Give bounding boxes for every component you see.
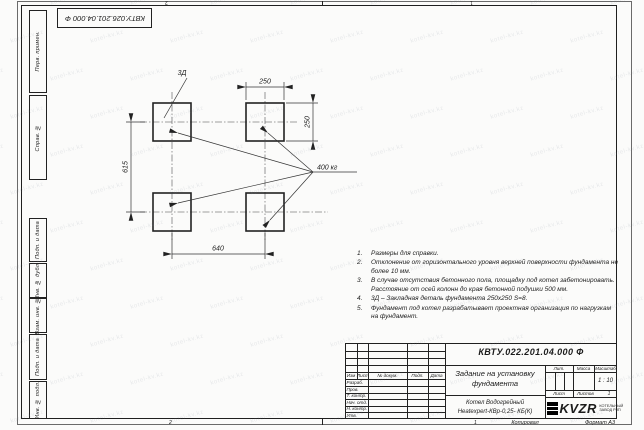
tb-line: [428, 343, 429, 419]
tb-col-izm: Изм: [345, 373, 357, 378]
dim-text-right-250: 250: [305, 116, 312, 129]
note-text: 3Д – Закладная деталь фундамента 250x250…: [371, 295, 619, 303]
margin-box-sprav-no: Справ. №: [29, 95, 48, 180]
tb-col-list: Лист: [357, 373, 368, 378]
watermark-text: kotel-kv.kz: [0, 143, 5, 158]
watermark-text: kotel-kv.kz: [0, 219, 5, 234]
margin-box-inv-dubl: Инв. № дубл.: [29, 263, 48, 298]
top-designation-text: КВТУ.026.201.04.000 Ф: [65, 14, 145, 23]
tb-line: [368, 343, 369, 419]
watermark-text: kotel-kv.kz: [0, 371, 5, 386]
tb-line: [564, 372, 565, 390]
tb-lit-label: Лит.: [545, 366, 573, 371]
margin-box-vzam-inv: Взам. инв. №: [29, 298, 48, 333]
tb-line: [345, 351, 445, 352]
tb-row-nachotd: Нач. отд.: [347, 400, 368, 405]
embed-label-text: 3Д: [178, 70, 187, 77]
note-text: В случае отсутствия бетонного пола, площ…: [371, 277, 619, 294]
tb-row-prov: Пров.: [347, 387, 359, 392]
tb-row-tkontr: Т. контр.: [347, 393, 367, 398]
tb-row-razrab: Разраб.: [347, 380, 364, 385]
note-item: 2.Отклонение от горизонтального уровня в…: [353, 259, 619, 276]
note-number: 1.: [353, 250, 371, 258]
tb-sheets-label: Листов: [577, 391, 594, 396]
kvzr-logo-icon: [547, 402, 558, 415]
load-leader-top-right: [268, 133, 313, 172]
watermark-text: kotel-kv.kz: [0, 67, 5, 82]
tb-line: [407, 343, 408, 419]
note-item: 3.В случае отсутствия бетонного пола, пл…: [353, 277, 619, 294]
margin-label-podp-data-2: Подп. и дата: [35, 338, 41, 376]
tb-sheet-label: Лист: [545, 391, 573, 396]
tb-sheets-value: 1: [604, 391, 614, 397]
margin-label-inv-dubl: Инв. № дубл.: [35, 262, 41, 299]
margin-label-inv-podl: Инв. № подл.: [35, 381, 41, 419]
tb-line: [345, 386, 445, 387]
load-label-text: 400 кг: [317, 165, 338, 172]
watermark-text: kotel-kv.kz: [0, 0, 5, 7]
note-text: Отклонение от горизонтального уровня вер…: [371, 259, 619, 276]
note-item: 5.Фундамент под котел разрабатывает прое…: [353, 305, 619, 322]
tb-product-line2: Heatexpert-КВр-0,25- КБ(К): [446, 409, 544, 415]
tb-line: [345, 358, 445, 359]
dim-text-left-615: 615: [123, 161, 130, 173]
note-number: 4.: [353, 295, 371, 303]
tb-designation: КВТУ.022.201.04.000 Ф: [445, 347, 617, 357]
drawing-sheet: { "watermark": { "text": "kotel-kv.kz" }…: [0, 0, 644, 430]
margin-label-podp-data-1: Подп. и дата: [35, 221, 41, 259]
foundation-plan-drawing: 250 250 615 640 3Д 400 кг: [100, 50, 360, 270]
margin-box-perv-primen: Перв. примен.: [29, 10, 48, 93]
tb-product-line1: Котел Водогрейный: [446, 400, 544, 406]
note-item: 4.3Д – Закладная деталь фундамента 250x2…: [353, 295, 619, 303]
dim-text-bottom-640: 640: [212, 246, 224, 253]
tb-doc-title: Задание на установку фундамента: [447, 369, 543, 389]
tb-col-data: Дата: [428, 373, 445, 378]
kvzr-logo-subtext-2: ЗАВОД РЗП: [599, 408, 623, 412]
fold-tick-top: [322, 1, 323, 5]
tb-line: [345, 412, 445, 413]
margin-box-inv-podl: Инв. № подл.: [29, 381, 48, 419]
zone-digit-top-left: 2: [165, 0, 168, 5]
note-text: Размеры для справки.: [371, 250, 619, 258]
margin-label-perv-primen: Перв. примен.: [35, 31, 41, 71]
footer-format-label: Формат А3: [580, 420, 620, 426]
margin-label-sprav-no: Справ. №: [35, 124, 41, 151]
embed-label-leader: [164, 78, 187, 118]
note-number: 3.: [353, 277, 371, 294]
margin-box-podp-data-1: Подп. и дата: [29, 218, 48, 262]
tb-col-podp: Подп.: [407, 373, 428, 378]
tb-col-dokum: № докум.: [368, 373, 407, 378]
note-item: 1.Размеры для справки.: [353, 250, 619, 258]
tb-row-utv: Утв.: [347, 413, 357, 418]
tb-line: [545, 397, 617, 398]
zone-digit-bottom-right: 1: [474, 420, 477, 426]
tb-row-nkontr: Н. контр.: [347, 406, 368, 411]
zone-digit-bottom-left: 2: [169, 420, 172, 426]
tb-scale-value: 1 : 10: [594, 378, 617, 384]
zone-digit-top-right: 1: [470, 0, 473, 5]
fold-tick-bottom: [322, 419, 323, 425]
dim-text-top-250: 250: [258, 79, 271, 86]
tb-line: [445, 395, 545, 396]
kvzr-logo-text: KVZR: [560, 401, 597, 416]
notes-block: 1.Размеры для справки. 2.Отклонение от г…: [353, 250, 619, 323]
tb-line: [545, 372, 617, 373]
note-number: 5.: [353, 305, 371, 322]
note-number: 2.: [353, 259, 371, 276]
margin-box-podp-data-2: Подп. и дата: [29, 334, 48, 380]
tb-line: [555, 372, 556, 390]
kvzr-logo: KVZR КОТЕЛЬНЫЙ ЗАВОД РЗП: [547, 399, 615, 417]
margin-label-vzam-inv: Взам. инв. №: [35, 297, 41, 335]
footer-copied-label: Копировал: [498, 420, 552, 426]
load-leader-bottom-right: [270, 172, 313, 220]
tb-mass-label: Масса: [573, 366, 594, 371]
tb-scale-label: Масштаб: [594, 366, 617, 371]
watermark-text: kotel-kv.kz: [0, 295, 5, 310]
top-designation-stamp: КВТУ.026.201.04.000 Ф: [57, 8, 152, 28]
note-text: Фундамент под котел разрабатывает проект…: [371, 305, 619, 322]
